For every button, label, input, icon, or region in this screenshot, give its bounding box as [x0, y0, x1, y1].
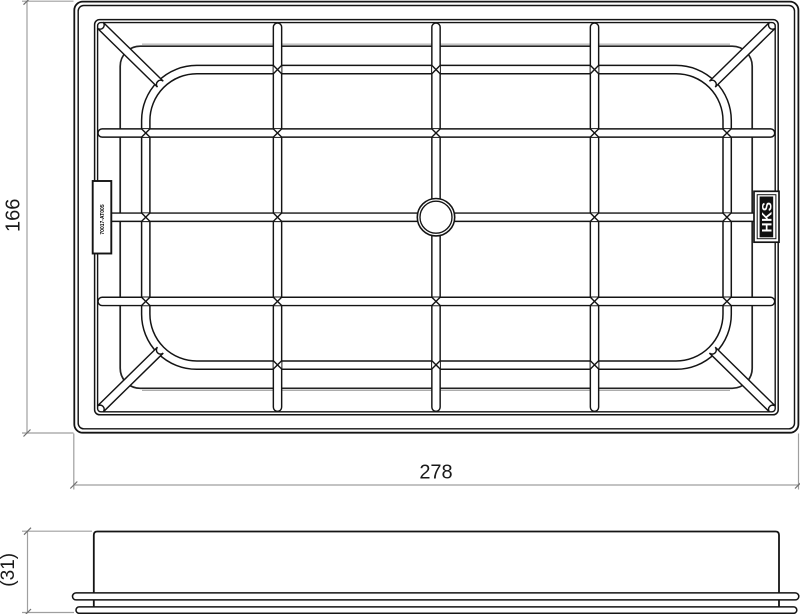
svg-text:278: 278: [419, 462, 452, 484]
svg-text:70017-AT005: 70017-AT005: [100, 204, 106, 234]
svg-text:166: 166: [3, 199, 25, 232]
svg-text:HKS: HKS: [759, 201, 774, 232]
svg-text:(31): (31): [0, 553, 19, 587]
